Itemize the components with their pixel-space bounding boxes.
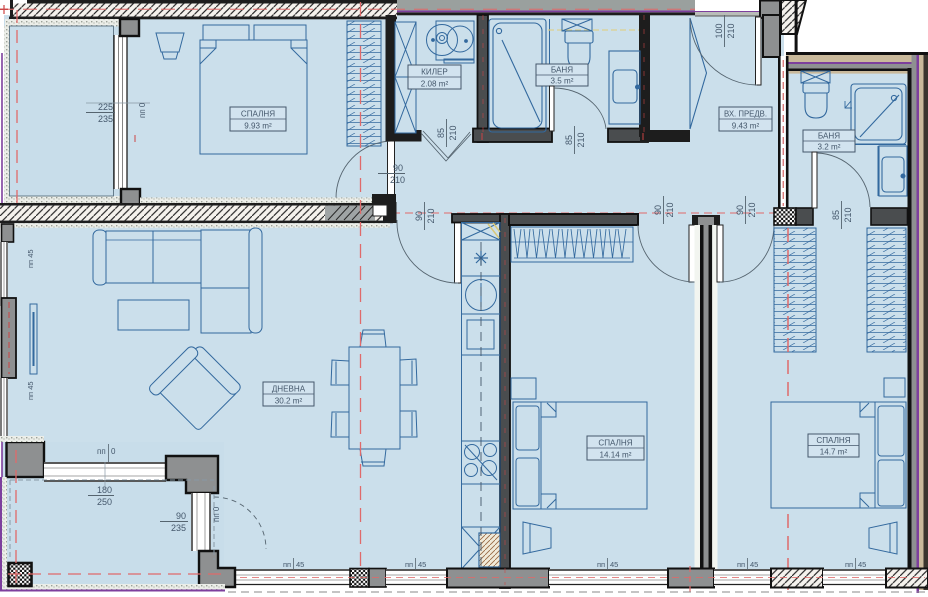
svg-text:210: 210 <box>576 132 586 147</box>
svg-text:210: 210 <box>448 125 458 140</box>
svg-text:КИЛЕР: КИЛЕР <box>421 68 448 77</box>
svg-text:210: 210 <box>843 207 853 222</box>
svg-text:пп: пп <box>737 560 745 569</box>
svg-text:2.08 m²: 2.08 m² <box>421 80 449 89</box>
svg-text:210: 210 <box>665 202 675 217</box>
svg-text:СПАЛНЯ: СПАЛНЯ <box>816 436 850 445</box>
svg-text:пп 45: пп 45 <box>26 249 35 268</box>
svg-text:3.5 m²: 3.5 m² <box>551 77 574 86</box>
svg-text:45: 45 <box>418 560 426 569</box>
svg-text:СПАЛНЯ: СПАЛНЯ <box>598 439 632 448</box>
svg-text:210: 210 <box>390 175 405 185</box>
svg-text:90: 90 <box>653 205 663 215</box>
svg-text:225: 225 <box>98 102 113 112</box>
svg-text:30.2 m²: 30.2 m² <box>275 397 303 406</box>
svg-text:БАНЯ: БАНЯ <box>818 132 840 141</box>
svg-text:БАНЯ: БАНЯ <box>551 66 573 75</box>
svg-text:пп: пп <box>283 560 291 569</box>
svg-text:235: 235 <box>171 523 186 533</box>
svg-text:пп 0: пп 0 <box>138 102 147 118</box>
svg-text:9.93 m²: 9.93 m² <box>244 122 272 131</box>
svg-text:пп 0: пп 0 <box>212 506 221 522</box>
svg-text:пп 45: пп 45 <box>26 381 35 400</box>
svg-text:пп: пп <box>597 560 605 569</box>
svg-text:9.43 m²: 9.43 m² <box>732 122 760 131</box>
svg-text:ДНЕВНА: ДНЕВНА <box>272 385 306 394</box>
svg-text:235: 235 <box>98 114 113 124</box>
svg-text:45: 45 <box>296 560 304 569</box>
svg-text:14.7 m²: 14.7 m² <box>820 448 848 457</box>
svg-text:210: 210 <box>726 23 736 38</box>
svg-text:СПАЛНЯ: СПАЛНЯ <box>241 110 275 119</box>
svg-text:45: 45 <box>610 560 618 569</box>
svg-text:85: 85 <box>436 128 446 138</box>
svg-text:250: 250 <box>97 497 112 507</box>
svg-text:пп: пп <box>405 560 413 569</box>
svg-text:85: 85 <box>564 135 574 145</box>
svg-text:210: 210 <box>747 202 757 217</box>
svg-text:90: 90 <box>735 205 745 215</box>
svg-text:90: 90 <box>393 163 403 173</box>
svg-text:100: 100 <box>714 23 724 38</box>
svg-text:210: 210 <box>426 208 436 223</box>
svg-text:90: 90 <box>414 211 424 221</box>
svg-text:14.14 m²: 14.14 m² <box>600 451 632 460</box>
svg-text:45: 45 <box>858 560 866 569</box>
svg-text:пп: пп <box>97 447 106 456</box>
svg-text:пп: пп <box>845 560 853 569</box>
svg-text:ВХ. ПРЕДВ.: ВХ. ПРЕДВ. <box>724 110 767 119</box>
svg-text:180: 180 <box>97 485 112 495</box>
svg-text:45: 45 <box>750 560 758 569</box>
svg-text:85: 85 <box>831 210 841 220</box>
svg-text:90: 90 <box>176 511 186 521</box>
svg-text:3.2 m²: 3.2 m² <box>818 143 841 152</box>
svg-text:0: 0 <box>111 447 116 456</box>
